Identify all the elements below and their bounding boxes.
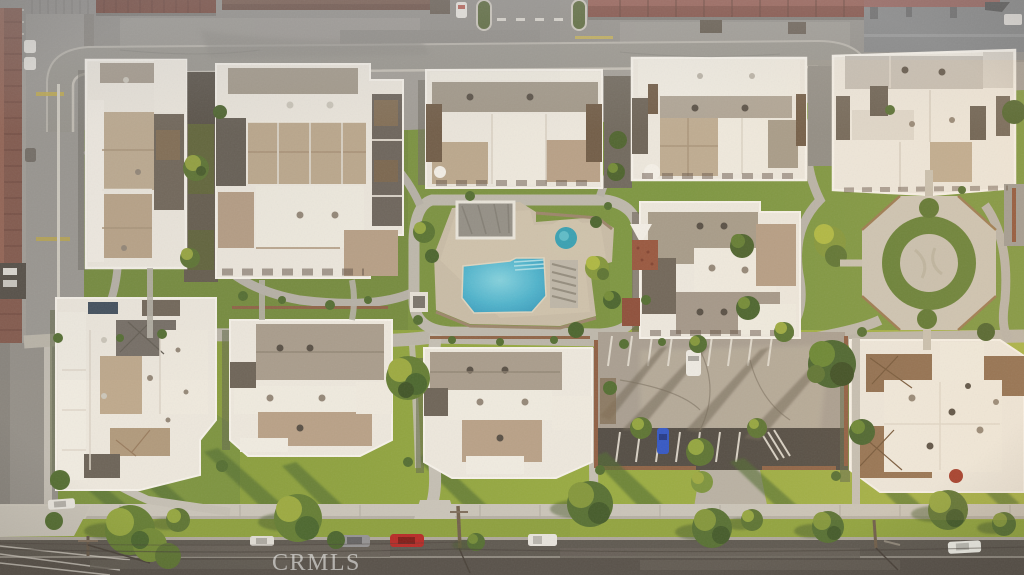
svg-text:CRMLS: CRMLS xyxy=(272,550,361,575)
